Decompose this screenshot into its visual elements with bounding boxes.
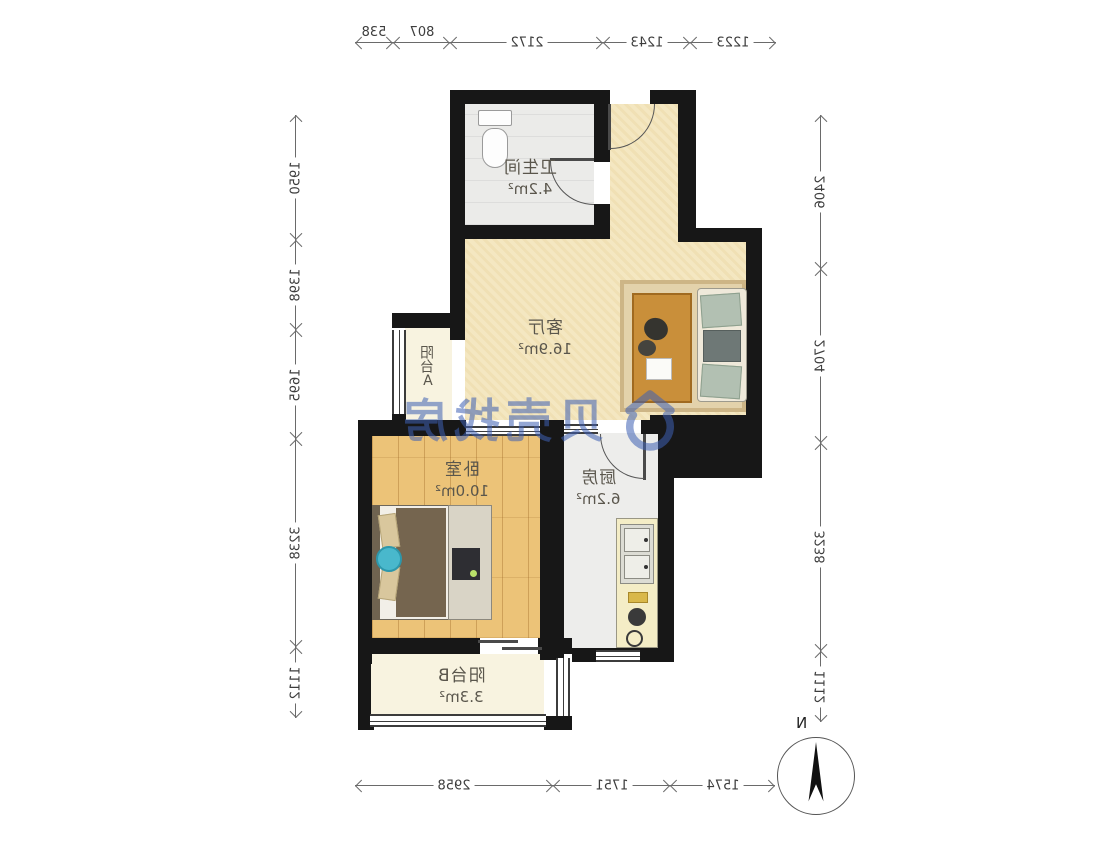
dim-value: 1112 [289, 662, 304, 703]
dim-value: 2958 [433, 779, 474, 794]
kitchen-name: 厨房 [580, 468, 616, 488]
kitchen-area: 6.2m² [576, 490, 620, 508]
room-label-bathroom: 卫生间 4.2m² [468, 158, 592, 199]
dim-value: 2172 [506, 36, 547, 51]
wall [678, 90, 696, 242]
bathroom-name: 卫生间 [503, 158, 557, 178]
room-label-living: 客厅 16.9m² [478, 318, 612, 359]
dim-value: 1751 [591, 779, 632, 794]
room-label-balcony-b: 阳台B 3.3m² [396, 666, 526, 707]
north-letter: N [796, 714, 807, 732]
dim-bottom-1574: 1574 [670, 785, 775, 786]
compass [777, 737, 855, 815]
balcony-b-sliding-door [478, 640, 518, 643]
beike-logo-icon [614, 382, 686, 454]
balcony-b-area: 3.3m² [439, 688, 483, 706]
dim-value: 1695 [289, 364, 304, 405]
dim-left-1398: 1398 [295, 240, 296, 330]
dim-value: 2704 [814, 335, 829, 376]
wall [392, 313, 465, 328]
living-area: 16.9m² [518, 340, 572, 358]
dim-top-538: 538 [355, 42, 393, 43]
dim-bottom-1751: 1751 [553, 785, 670, 786]
wall [358, 420, 372, 664]
dim-value: 1223 [712, 36, 753, 51]
wall [544, 716, 572, 730]
dim-value: 1243 [626, 36, 667, 51]
counter-item [628, 592, 648, 603]
wall [358, 638, 480, 654]
floor-plan-canvas: 卫生间 4.2m² 客厅 16.9m² 阳台A 卧室 10.0m² 厨房 6.2… [0, 0, 1095, 862]
toilet [478, 110, 512, 126]
dim-left-1950: 1950 [295, 115, 296, 240]
watermark-text: 贝壳找房 [396, 385, 604, 451]
wall [540, 420, 564, 660]
bathroom-area: 4.2m² [508, 180, 552, 198]
dim-value: 2406 [814, 171, 829, 212]
north-label: N [796, 714, 807, 732]
wall [450, 90, 465, 340]
balcony-b-sliding-door [502, 647, 542, 650]
compass-needle-icon [799, 742, 833, 808]
round-pillow [376, 546, 402, 572]
paper-on-table [646, 358, 672, 380]
wall [450, 225, 610, 239]
sofa-cushion [703, 330, 741, 362]
bedroom-name: 卧室 [444, 460, 480, 480]
kettle-on-table [638, 340, 656, 356]
dim-left-1112: 1112 [295, 647, 296, 718]
balcony-b-window [370, 714, 546, 727]
dim-top-2172: 2172 [450, 42, 603, 43]
dim-right-2406: 2406 [820, 115, 821, 269]
dim-value: 3238 [814, 526, 829, 567]
wall [450, 90, 610, 104]
dim-right-2704: 2704 [820, 269, 821, 443]
dim-top-1223: 1223 [690, 42, 776, 43]
sofa-cushion [700, 293, 742, 329]
balcony-b-side-window [556, 658, 570, 716]
sink-drain [644, 538, 648, 542]
dim-value: 807 [405, 25, 438, 40]
dim-right-3238: 3238 [820, 443, 821, 651]
dim-left-3238: 3238 [295, 439, 296, 647]
dim-value: 538 [358, 25, 391, 40]
dim-top-1243: 1243 [603, 42, 690, 43]
room-label-bedroom: 卧室 10.0m² [398, 460, 526, 501]
dim-top-807: 807 [393, 42, 450, 43]
dim-value: 1950 [289, 157, 304, 198]
stove-burner [628, 608, 646, 626]
kitchen-window [596, 650, 640, 662]
living-name: 客厅 [527, 318, 563, 338]
dim-value: 1398 [289, 264, 304, 305]
dim-value: 1112 [814, 666, 829, 707]
dim-bottom-2958: 2958 [355, 785, 553, 786]
dim-right-1112: 1112 [820, 651, 821, 722]
bedroom-area: 10.0m² [435, 482, 489, 500]
balcony-b-name: 阳台B [437, 666, 486, 686]
wall [538, 638, 572, 654]
room-label-kitchen: 厨房 6.2m² [542, 468, 654, 509]
tv-indicator [470, 570, 477, 577]
dim-value: 3238 [289, 522, 304, 563]
dim-value: 1574 [702, 779, 743, 794]
wall [594, 204, 610, 239]
stove-burner [626, 630, 643, 647]
sofa-cushion [700, 364, 742, 400]
dim-left-1695: 1695 [295, 330, 296, 439]
sink-drain [644, 565, 648, 569]
wall [746, 228, 762, 428]
watermark: 贝壳找房 [396, 382, 686, 454]
bed-blanket [396, 508, 446, 617]
